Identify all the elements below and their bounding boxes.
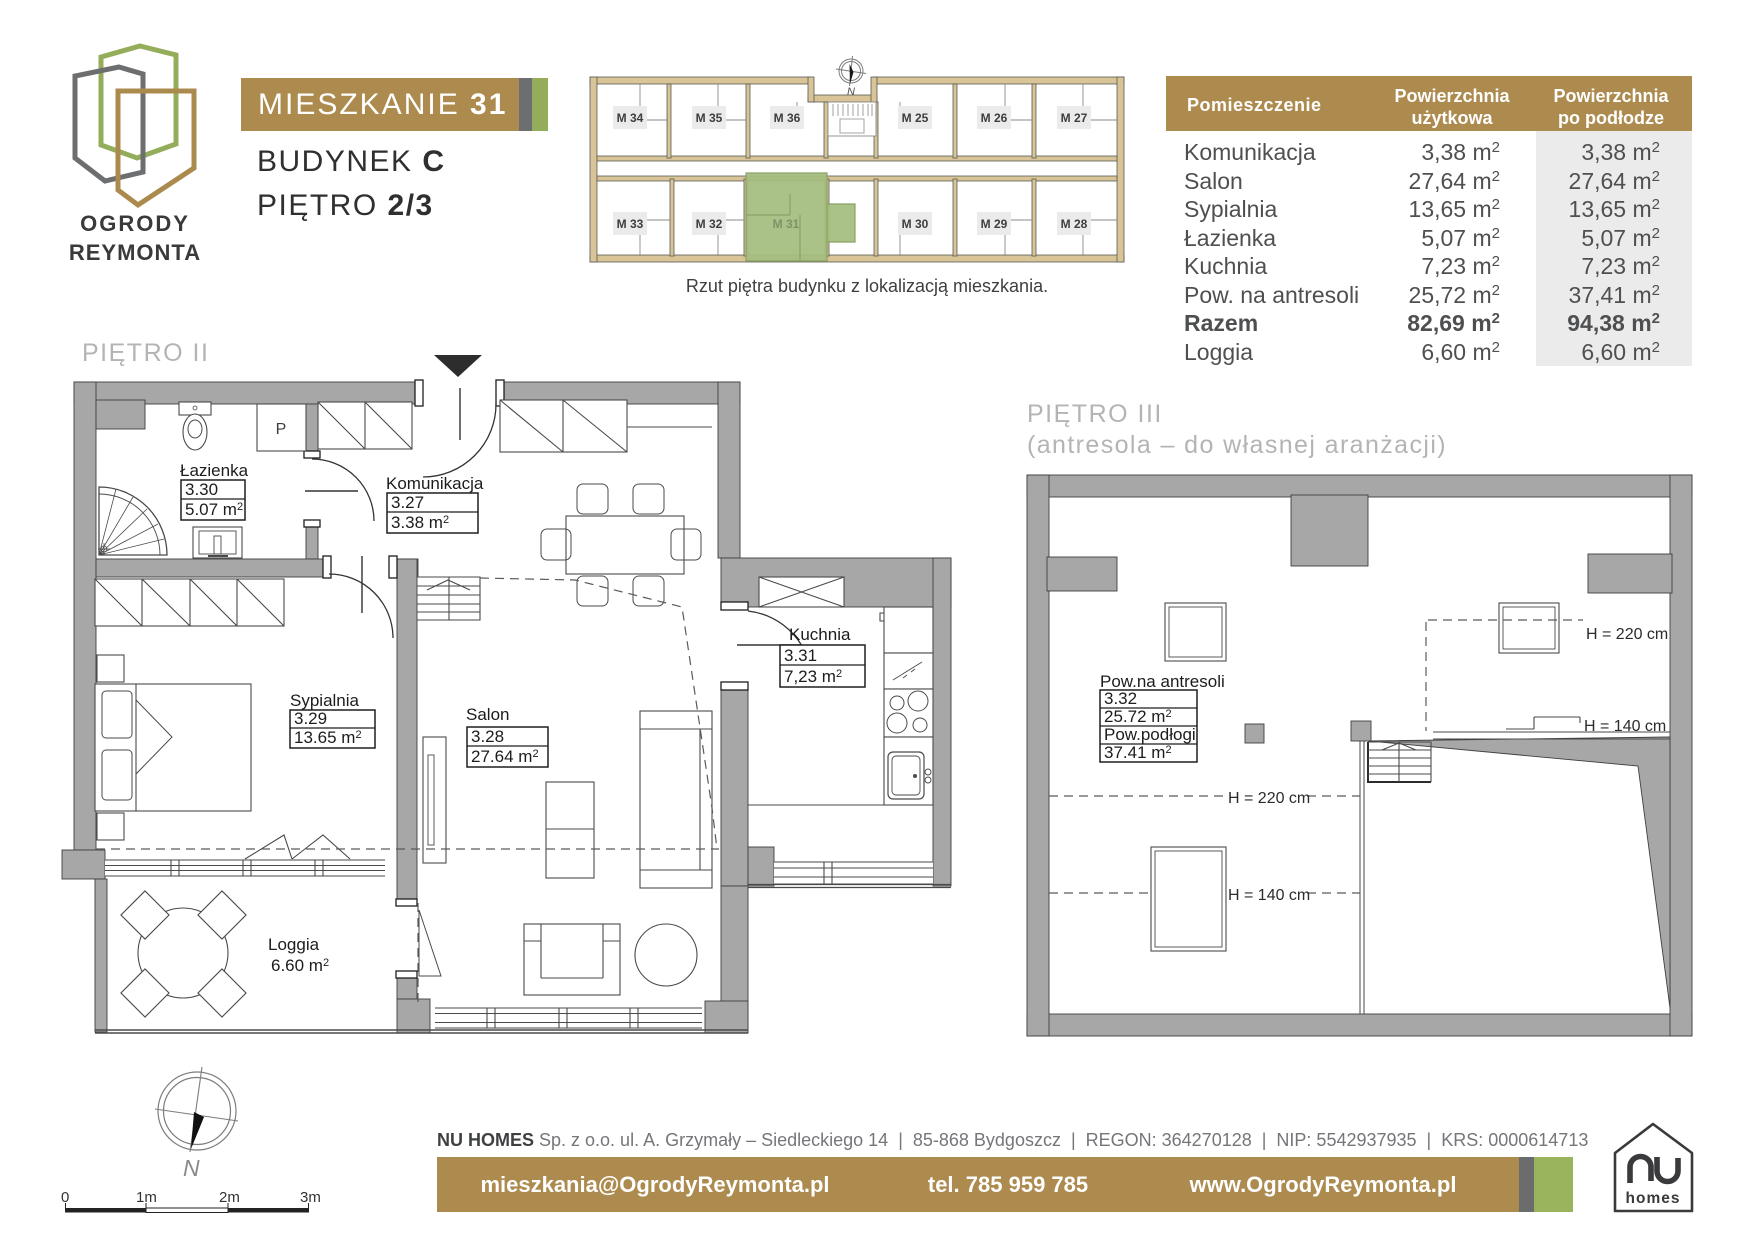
svg-text:N: N: [847, 86, 855, 98]
svg-text:M 32: M 32: [696, 217, 723, 231]
svg-text:M 36: M 36: [774, 111, 801, 125]
svg-text:27,64 m2: 27,64 m2: [1569, 168, 1660, 194]
svg-text:M 34: M 34: [617, 111, 644, 125]
svg-text:Kuchnia: Kuchnia: [789, 625, 851, 644]
svg-text:3,38 m2: 3,38 m2: [1581, 139, 1660, 165]
svg-text:NU HOMES Sp. z o.o. ul. A. Gr: NU HOMES Sp. z o.o. ul. A. Grzymały – Si…: [437, 1130, 1588, 1150]
svg-text:7,23 m2: 7,23 m2: [784, 667, 842, 686]
svg-text:Łazienka: Łazienka: [180, 461, 249, 480]
svg-text:2m: 2m: [219, 1189, 240, 1206]
svg-text:Sypialnia: Sypialnia: [290, 691, 360, 710]
svg-text:3,38 m2: 3,38 m2: [1421, 139, 1500, 165]
svg-text:M 29: M 29: [981, 217, 1008, 231]
svg-text:Razem: Razem: [1184, 310, 1258, 336]
svg-text:tel. 785 959 785: tel. 785 959 785: [928, 1172, 1088, 1197]
svg-text:M 25: M 25: [902, 111, 929, 125]
svg-text:M 31: M 31: [773, 217, 800, 231]
svg-text:po podłodze: po podłodze: [1558, 108, 1664, 128]
svg-text:3.38 m2: 3.38 m2: [391, 513, 449, 532]
svg-text:H = 220 cm: H = 220 cm: [1586, 626, 1668, 643]
svg-text:M 28: M 28: [1061, 217, 1088, 231]
svg-text:94,38 m2: 94,38 m2: [1567, 310, 1660, 336]
svg-text:Salon: Salon: [466, 705, 509, 724]
svg-text:PIĘTRO II: PIĘTRO II: [82, 339, 209, 367]
svg-text:M 26: M 26: [981, 111, 1008, 125]
svg-text:7,23 m2: 7,23 m2: [1581, 253, 1660, 279]
svg-text:Sypialnia: Sypialnia: [1184, 196, 1278, 222]
svg-text:H = 140 cm: H = 140 cm: [1584, 718, 1666, 735]
svg-text:Salon: Salon: [1184, 168, 1243, 194]
svg-text:Pow.podłogi: Pow.podłogi: [1104, 725, 1196, 744]
svg-text:Pomieszczenie: Pomieszczenie: [1187, 95, 1322, 115]
svg-text:5,07 m2: 5,07 m2: [1421, 225, 1500, 251]
svg-text:M 35: M 35: [696, 111, 723, 125]
svg-text:PIĘTRO III: PIĘTRO III: [1027, 400, 1163, 428]
svg-text:Pow. na antresoli: Pow. na antresoli: [1184, 282, 1359, 308]
svg-text:M 30: M 30: [902, 217, 929, 231]
svg-text:mieszkania@OgrodyReymonta.pl: mieszkania@OgrodyReymonta.pl: [480, 1172, 829, 1197]
svg-text:37.41 m2: 37.41 m2: [1104, 743, 1172, 762]
svg-text:Powierzchnia: Powierzchnia: [1394, 86, 1510, 106]
svg-text:5,07 m2: 5,07 m2: [1581, 225, 1660, 251]
svg-text:3.31: 3.31: [784, 646, 817, 665]
svg-text:3.30: 3.30: [185, 480, 218, 499]
svg-text:13,65 m2: 13,65 m2: [1409, 196, 1500, 222]
svg-text:37,41 m2: 37,41 m2: [1569, 282, 1660, 308]
svg-text:3m: 3m: [300, 1189, 321, 1206]
svg-text:REYMONTA: REYMONTA: [69, 240, 201, 265]
svg-text:P: P: [276, 421, 287, 438]
svg-text:3.27: 3.27: [391, 493, 424, 512]
svg-text:PIĘTRO 2/3: PIĘTRO 2/3: [257, 189, 434, 222]
svg-text:Rzut piętra budynku z lokaliza: Rzut piętra budynku z lokalizacją mieszk…: [686, 276, 1048, 296]
svg-text:3.29: 3.29: [294, 709, 327, 728]
svg-text:użytkowa: użytkowa: [1411, 108, 1493, 128]
svg-text:Łazienka: Łazienka: [1184, 225, 1276, 251]
svg-text:27.64 m2: 27.64 m2: [471, 747, 539, 766]
svg-text:13.65 m2: 13.65 m2: [294, 728, 362, 747]
svg-text:6,60 m2: 6,60 m2: [1421, 339, 1500, 365]
svg-text:25,72 m2: 25,72 m2: [1409, 282, 1500, 308]
svg-text:25.72 m2: 25.72 m2: [1104, 707, 1172, 726]
svg-text:13,65 m2: 13,65 m2: [1569, 196, 1660, 222]
svg-text:BUDYNEK C: BUDYNEK C: [257, 145, 446, 178]
svg-text:3.32: 3.32: [1104, 689, 1137, 708]
svg-text:Loggia: Loggia: [1184, 339, 1253, 365]
svg-text:Loggia: Loggia: [268, 935, 320, 954]
svg-text:H = 220 cm: H = 220 cm: [1228, 790, 1310, 807]
svg-text:3.28: 3.28: [471, 727, 504, 746]
svg-text:Komunikacja: Komunikacja: [1184, 139, 1316, 165]
svg-text:Komunikacja: Komunikacja: [386, 474, 484, 493]
svg-text:Kuchnia: Kuchnia: [1184, 253, 1267, 279]
svg-text:MIESZKANIE 31: MIESZKANIE 31: [258, 88, 507, 121]
svg-text:www.OgrodyReymonta.pl: www.OgrodyReymonta.pl: [1189, 1172, 1457, 1197]
svg-text:6.60 m2: 6.60 m2: [271, 956, 329, 975]
svg-text:M 27: M 27: [1061, 111, 1088, 125]
svg-text:Powierzchnia: Powierzchnia: [1553, 86, 1669, 106]
svg-text:82,69 m2: 82,69 m2: [1407, 310, 1500, 336]
svg-text:6,60 m2: 6,60 m2: [1581, 339, 1660, 365]
svg-text:5.07 m2: 5.07 m2: [185, 500, 243, 519]
svg-text:M 33: M 33: [617, 217, 644, 231]
svg-text:7,23 m2: 7,23 m2: [1421, 253, 1500, 279]
svg-text:H = 140 cm: H = 140 cm: [1228, 887, 1310, 904]
svg-text:OGRODY: OGRODY: [80, 211, 190, 236]
svg-text:(antresola – do własnej aranża: (antresola – do własnej aranżacji): [1027, 431, 1447, 459]
svg-text:homes: homes: [1626, 1190, 1681, 1207]
svg-text:N: N: [183, 1155, 200, 1181]
svg-text:27,64 m2: 27,64 m2: [1409, 168, 1500, 194]
